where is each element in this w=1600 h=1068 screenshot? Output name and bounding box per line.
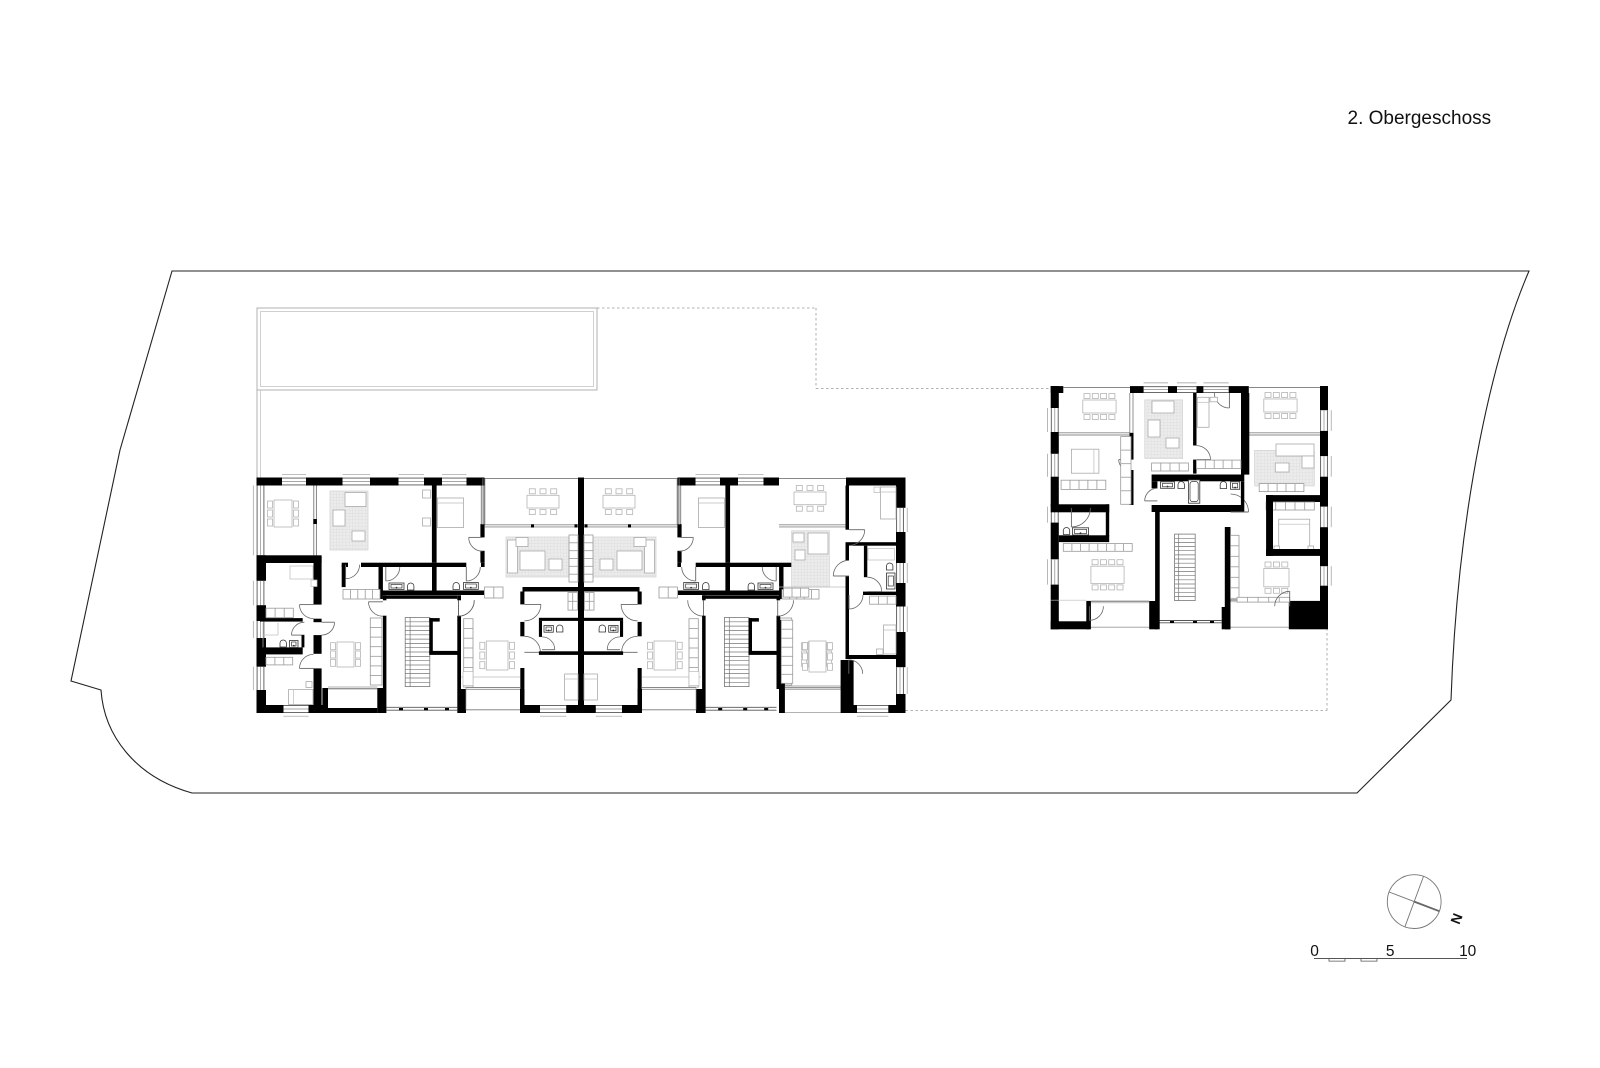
svg-text:10: 10 [1459, 943, 1477, 960]
svg-text:0: 0 [1310, 943, 1319, 960]
svg-text:2. Obergeschoss: 2. Obergeschoss [1348, 108, 1492, 129]
svg-text:5: 5 [1386, 943, 1395, 960]
